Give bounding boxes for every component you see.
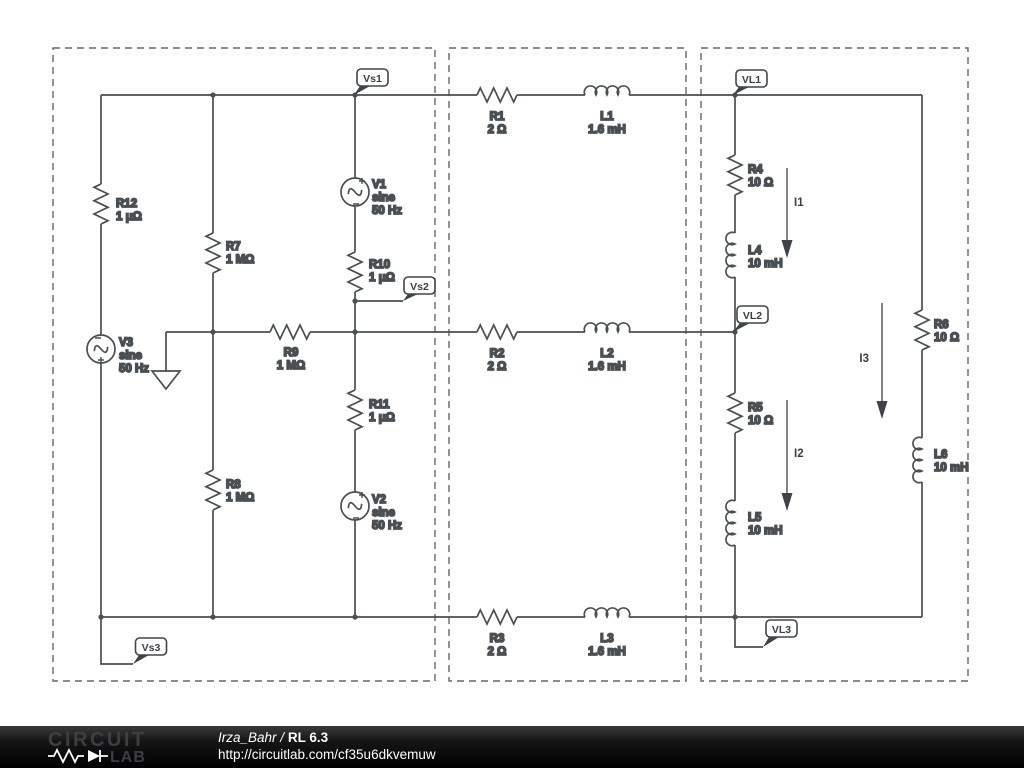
flag-label: VL2 bbox=[743, 310, 762, 322]
component-name: V2 bbox=[372, 494, 386, 506]
resistor-symbol bbox=[206, 233, 220, 273]
current-label: I1 bbox=[794, 197, 804, 209]
component-value: sine bbox=[372, 192, 395, 204]
component-name: L3 bbox=[600, 633, 613, 645]
component-value: 2 Ω bbox=[488, 361, 507, 373]
current-arrow-I2[interactable]: I2 bbox=[782, 400, 804, 511]
inductor-symbol bbox=[584, 323, 629, 332]
voltage-source-V1[interactable]: V1 sine 50 Hz bbox=[341, 178, 402, 217]
inductor-L2[interactable]: L2 1.6 mH bbox=[584, 323, 629, 373]
flag-pointer bbox=[354, 86, 370, 95]
resistor-symbol bbox=[728, 155, 742, 195]
component-frequency: 50 Hz bbox=[372, 205, 402, 217]
component-value: 1.6 mH bbox=[588, 124, 626, 136]
arrow-head bbox=[782, 493, 793, 511]
net-flag-VL2[interactable]: VL2 bbox=[733, 306, 768, 332]
component-value: sine bbox=[372, 507, 395, 519]
component-value: 10 Ω bbox=[934, 332, 959, 344]
footer-bar: CIRCUIT LAB Irza_Bahr / RL 6.3 http://ci… bbox=[0, 726, 1024, 768]
component-name: R3 bbox=[490, 633, 505, 645]
component-value: 2 Ω bbox=[488, 124, 507, 136]
inductor-symbol bbox=[913, 437, 922, 482]
circuitlab-logo-graphic: CIRCUIT LAB bbox=[44, 730, 194, 764]
component-value: 1 μΩ bbox=[116, 211, 142, 223]
component-name: R5 bbox=[748, 402, 763, 414]
component-name: L2 bbox=[600, 348, 613, 360]
component-value: 1 μΩ bbox=[369, 412, 395, 424]
component-frequency: 50 Hz bbox=[119, 363, 149, 375]
inductor-symbol bbox=[584, 608, 629, 617]
wire-segments bbox=[101, 95, 922, 664]
component-name: R1 bbox=[490, 111, 505, 123]
component-value: 1.6 mH bbox=[588, 361, 626, 373]
component-name: R8 bbox=[226, 479, 241, 491]
resistor-symbol bbox=[206, 470, 220, 510]
ground-symbol[interactable] bbox=[152, 371, 180, 389]
resistor-R5[interactable]: R5 10 Ω bbox=[728, 393, 773, 433]
component-value: 10 mH bbox=[748, 258, 783, 270]
component-value: 10 mH bbox=[934, 462, 969, 474]
net-flag-Vs3[interactable]: Vs3 bbox=[133, 638, 167, 664]
net-flag-VL3[interactable]: VL3 bbox=[763, 620, 797, 647]
resistor-R1[interactable]: R1 2 Ω bbox=[477, 88, 517, 136]
resistor-R12[interactable]: R12 1 μΩ bbox=[94, 184, 142, 224]
component-name: R9 bbox=[284, 347, 299, 359]
dashed-region-sources bbox=[53, 48, 435, 681]
component-value: 1.6 mH bbox=[588, 646, 626, 658]
component-name: R12 bbox=[116, 198, 137, 210]
resistor-R10[interactable]: R10 1 μΩ bbox=[348, 252, 395, 292]
component-name: L6 bbox=[934, 449, 947, 461]
schematic-title-line: Irza_Bahr / RL 6.3 bbox=[218, 729, 436, 746]
resistor-R3[interactable]: R3 2 Ω bbox=[477, 610, 517, 658]
dashed-region-load bbox=[701, 48, 968, 681]
component-name: R2 bbox=[490, 348, 505, 360]
logo-word-lab: LAB bbox=[110, 749, 146, 764]
resistor-icon bbox=[48, 750, 84, 762]
component-name: R4 bbox=[748, 164, 763, 176]
diode-bar-icon bbox=[100, 750, 108, 762]
component-value: 2 Ω bbox=[488, 646, 507, 658]
component-name: V3 bbox=[119, 337, 133, 349]
resistor-R4[interactable]: R4 10 Ω bbox=[728, 155, 773, 195]
resistor-symbol bbox=[270, 325, 310, 339]
component-name: L5 bbox=[748, 512, 762, 524]
schematic-canvas: R12 1 μΩ V3 sine 50 Hz R7 1 MΩ R8 1 MΩ R… bbox=[0, 0, 1024, 726]
current-label: I2 bbox=[794, 448, 804, 460]
resistor-symbol bbox=[348, 252, 362, 292]
resistor-symbol bbox=[477, 325, 517, 339]
net-flag-VL1[interactable]: VL1 bbox=[733, 70, 767, 95]
flag-label: VL1 bbox=[742, 74, 761, 86]
component-name: L1 bbox=[600, 111, 614, 123]
inductor-L4[interactable]: L4 10 mH bbox=[726, 232, 783, 277]
resistor-R11[interactable]: R11 1 μΩ bbox=[348, 390, 395, 430]
circuitlab-logo[interactable]: CIRCUIT LAB bbox=[44, 730, 194, 768]
resistor-symbol bbox=[94, 184, 108, 224]
resistor-R2[interactable]: R2 2 Ω bbox=[477, 325, 517, 373]
component-value: 1 μΩ bbox=[369, 272, 395, 284]
inductor-L1[interactable]: L1 1.6 mH bbox=[584, 86, 629, 136]
component-value: 1 MΩ bbox=[226, 254, 254, 266]
inductor-symbol bbox=[584, 86, 629, 95]
schematic-url[interactable]: http://circuitlab.com/cf35u6dkvemuw bbox=[218, 746, 436, 763]
resistor-R7[interactable]: R7 1 MΩ bbox=[206, 233, 254, 273]
dashed-region-lines bbox=[449, 48, 686, 681]
flag-label: VL3 bbox=[772, 624, 791, 636]
component-name: L4 bbox=[748, 245, 762, 257]
component-name: R10 bbox=[369, 259, 390, 271]
component-value: 10 Ω bbox=[748, 415, 773, 427]
component-value: 1 MΩ bbox=[226, 492, 254, 504]
resistor-symbol bbox=[477, 88, 517, 102]
current-arrow-I1[interactable]: I1 bbox=[782, 168, 805, 258]
voltage-source-symbol bbox=[341, 178, 369, 206]
net-flag-Vs1[interactable]: Vs1 bbox=[354, 69, 388, 95]
junction-dots bbox=[98, 92, 737, 619]
flag-label: Vs3 bbox=[142, 642, 161, 654]
component-name: R7 bbox=[226, 241, 241, 253]
inductor-symbol bbox=[726, 500, 735, 545]
flag-label: Vs1 bbox=[363, 73, 382, 85]
flag-pointer bbox=[763, 637, 779, 647]
component-value: 10 mH bbox=[748, 525, 783, 537]
inductor-L3[interactable]: L3 1.6 mH bbox=[584, 608, 629, 658]
resistor-R9[interactable]: R9 1 MΩ bbox=[270, 325, 310, 372]
resistor-R8[interactable]: R8 1 MΩ bbox=[206, 470, 254, 510]
component-value: sine bbox=[119, 350, 142, 362]
inductor-L5[interactable]: L5 10 mH bbox=[726, 500, 783, 545]
resistor-symbol bbox=[348, 390, 362, 430]
circuitlab-schematic-page: R12 1 μΩ V3 sine 50 Hz R7 1 MΩ R8 1 MΩ R… bbox=[0, 0, 1024, 768]
inductor-symbol bbox=[726, 232, 735, 277]
component-frequency: 50 Hz bbox=[372, 520, 402, 532]
arrow-head bbox=[782, 240, 793, 258]
component-name: R6 bbox=[934, 319, 949, 331]
resistor-R6[interactable]: R6 10 Ω bbox=[915, 310, 959, 350]
current-arrow-I3[interactable]: I3 bbox=[859, 303, 887, 419]
component-name: R11 bbox=[369, 399, 390, 411]
current-label: I3 bbox=[859, 353, 869, 365]
flag-pointer bbox=[133, 655, 149, 664]
schematic-title: RL 6.3 bbox=[288, 730, 328, 745]
inductor-L6[interactable]: L6 10 mH bbox=[913, 437, 969, 482]
author-name: Irza_Bahr bbox=[218, 730, 277, 745]
voltage-source-V3[interactable]: V3 sine 50 Hz bbox=[87, 335, 149, 375]
voltage-source-symbol bbox=[341, 492, 369, 520]
diode-icon bbox=[88, 750, 100, 762]
logo-word-circuit: CIRCUIT bbox=[48, 730, 147, 751]
footer-title-block: Irza_Bahr / RL 6.3 http://circuitlab.com… bbox=[218, 729, 436, 763]
component-value: 10 Ω bbox=[748, 177, 773, 189]
voltage-source-V2[interactable]: V2 sine 50 Hz bbox=[341, 492, 402, 532]
arrow-head bbox=[877, 401, 888, 419]
component-name: V1 bbox=[372, 179, 387, 191]
flag-label: Vs2 bbox=[410, 281, 429, 293]
component-value: 1 MΩ bbox=[277, 360, 305, 372]
resistor-symbol bbox=[728, 393, 742, 433]
resistor-symbol bbox=[915, 310, 929, 350]
flag-pointer bbox=[403, 294, 418, 301]
resistor-symbol bbox=[477, 610, 517, 624]
net-flag-Vs2[interactable]: Vs2 bbox=[403, 277, 435, 301]
